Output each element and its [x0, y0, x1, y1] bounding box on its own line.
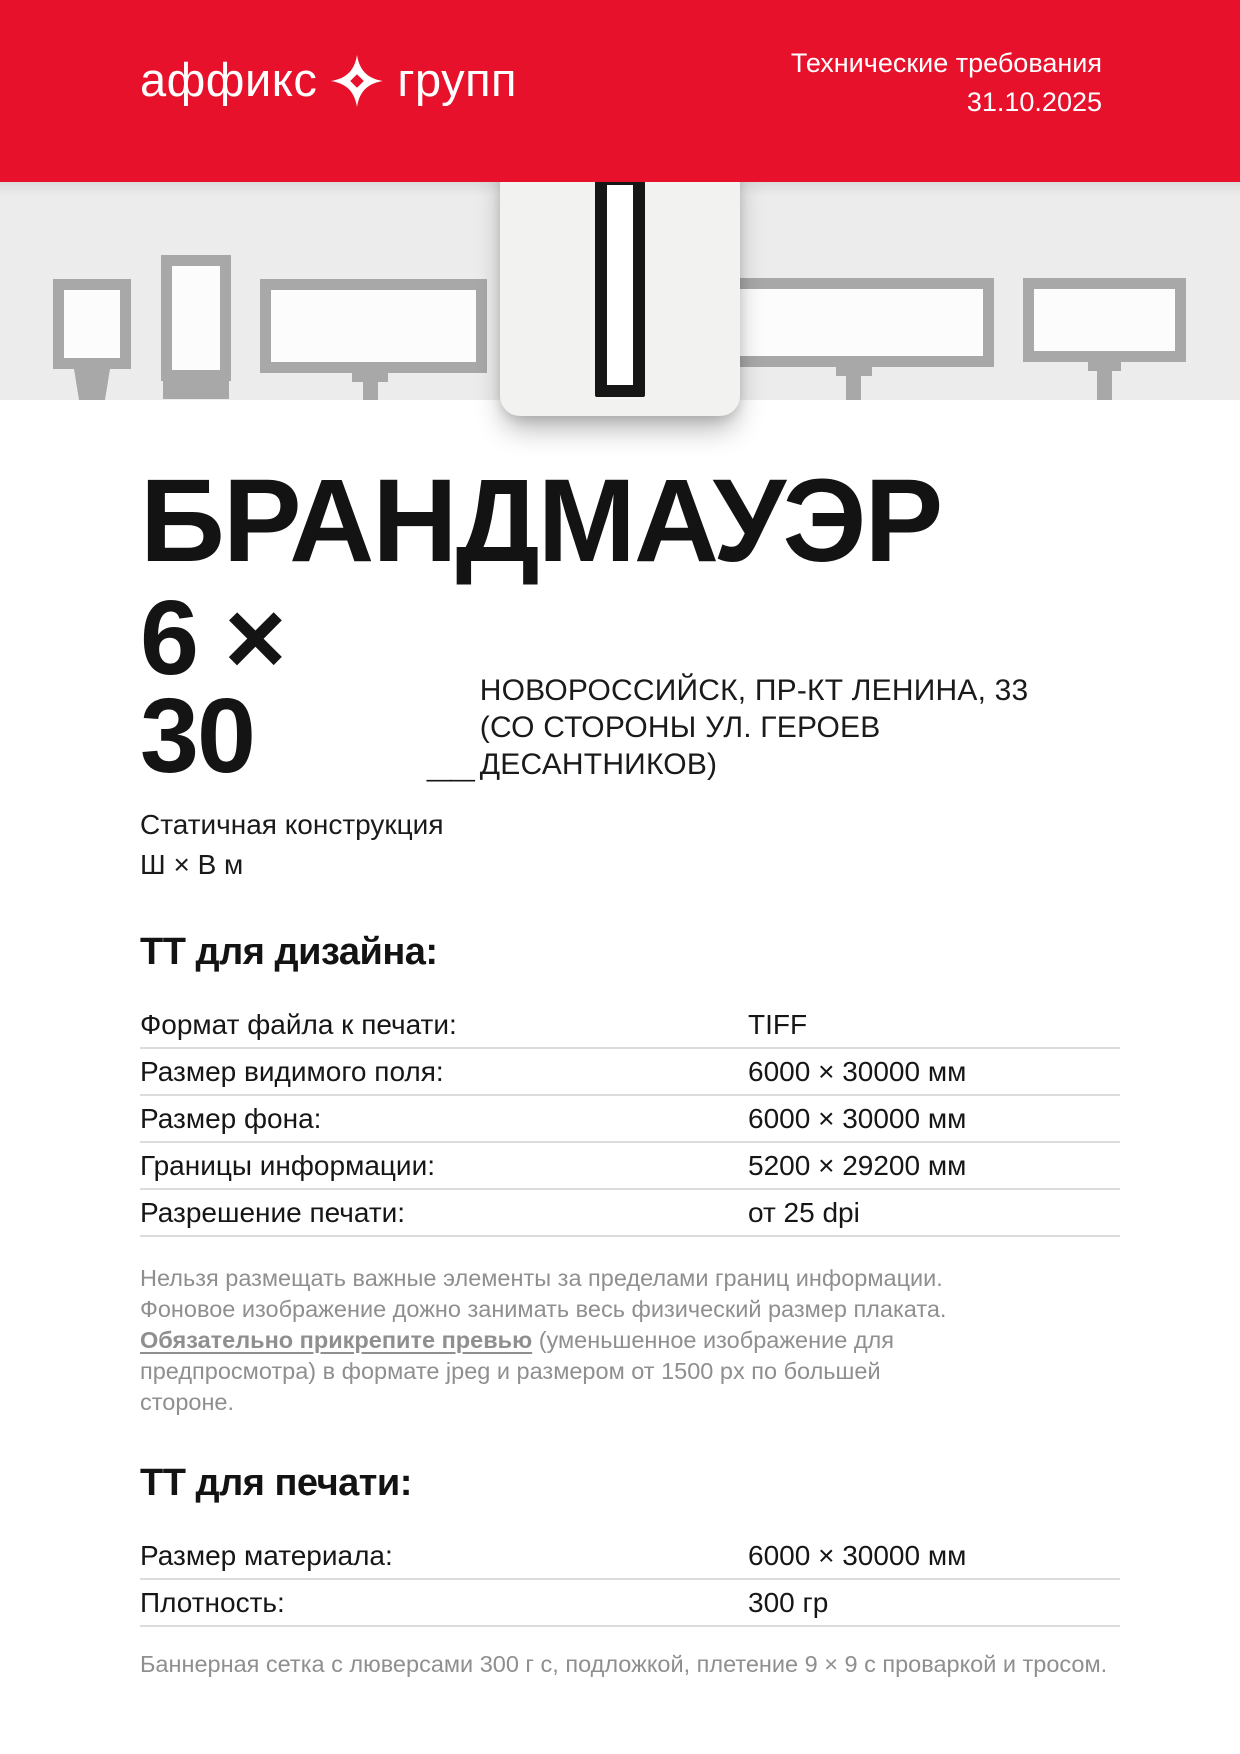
citylight-base: [74, 369, 110, 400]
table-row: Размер материала: 6000 × 30000 мм: [140, 1533, 1120, 1580]
construction-info: Статичная конструкция Ш × В м: [140, 805, 1120, 885]
header: аффикс групп Технические требования 31.1…: [0, 0, 1240, 182]
table-row: Формат файла к печати: TIFF: [140, 1002, 1120, 1049]
note-important-text: Обязательно прикрепите превью: [140, 1327, 532, 1353]
design-spec-table: Формат файла к печати: TIFF Размер видим…: [140, 1002, 1120, 1237]
constructions-band: [0, 182, 1240, 400]
format-card: [500, 154, 740, 416]
logo-text-affix: аффикс: [140, 52, 317, 107]
logo-text-group: групп: [397, 52, 517, 107]
table-row: Границы информации: 5200 × 29200 мм: [140, 1143, 1120, 1190]
row-value: 300 гр: [748, 1587, 828, 1619]
print-spec-table: Размер материала: 6000 × 30000 мм Плотно…: [140, 1533, 1120, 1627]
construction-type: Статичная конструкция: [140, 805, 1120, 845]
doc-date: 31.10.2025: [791, 83, 1102, 122]
row-label: Размер видимого поля:: [140, 1056, 444, 1088]
pillar-icon: [161, 255, 231, 381]
row-value: TIFF: [748, 1009, 807, 1041]
table-row: Размер видимого поля: 6000 × 30000 мм: [140, 1049, 1120, 1096]
affix-group-logo: аффикс групп: [140, 52, 517, 107]
tech-requirements-page: аффикс групп Технические требования 31.1…: [0, 0, 1240, 1754]
pillar-base: [163, 381, 229, 399]
brandmauer-format-icon: [595, 173, 645, 397]
underscore-decoration: __: [427, 749, 474, 775]
design-section-heading: ТТ для дизайна:: [140, 931, 1120, 974]
material-note: Баннерная сетка с люверсами 300 г с, под…: [140, 1649, 1120, 1680]
table-row: Плотность: 300 гр: [140, 1580, 1120, 1627]
board-far-right-icon: [1023, 278, 1186, 362]
main-content: БРАНДМАУЭР 6 × 30 __ НОВОРОССИЙСК, ПР-КТ…: [0, 462, 1240, 1680]
address-line-1: НОВОРОССИЙСК, ПР-КТ ЛЕНИНА, 33: [480, 672, 1120, 709]
row-value: 6000 × 30000 мм: [748, 1103, 966, 1135]
doc-meta: Технические требования 31.10.2025: [791, 44, 1102, 122]
row-label: Плотность:: [140, 1587, 285, 1619]
table-row: Разрешение печати: от 25 dpi: [140, 1190, 1120, 1237]
note-text: Нельзя размещать важные элементы за пред…: [140, 1265, 946, 1322]
size-value: 6 × 30: [140, 590, 423, 785]
billboard-right-pole: [846, 367, 861, 400]
billboard-left-pole: [363, 373, 378, 400]
board-far-right-pole: [1097, 362, 1112, 400]
citylight-icon: [53, 279, 131, 369]
print-section-heading: ТТ для печати:: [140, 1462, 1120, 1505]
design-note: Нельзя размещать важные элементы за пред…: [140, 1263, 950, 1418]
billboard-left-icon: [260, 279, 487, 373]
sparkle-star-icon: [331, 55, 383, 107]
dimensions-legend: Ш × В м: [140, 845, 1120, 885]
row-label: Формат файла к печати:: [140, 1009, 457, 1041]
address: НОВОРОССИЙСК, ПР-КТ ЛЕНИНА, 33 (СО СТОРО…: [480, 672, 1120, 783]
row-label: Разрешение печати:: [140, 1197, 405, 1229]
doc-type: Технические требования: [791, 44, 1102, 83]
row-value: 6000 × 30000 мм: [748, 1056, 966, 1088]
address-line-2: (СО СТОРОНЫ УЛ. ГЕРОЕВ ДЕСАНТНИКОВ): [480, 709, 1120, 783]
size-row: 6 × 30 __ НОВОРОССИЙСК, ПР-КТ ЛЕНИНА, 33…: [140, 590, 1120, 785]
row-value: от 25 dpi: [748, 1197, 860, 1229]
page-title: БРАНДМАУЭР: [140, 462, 1120, 580]
row-label: Размер материала:: [140, 1540, 393, 1572]
table-row: Размер фона: 6000 × 30000 мм: [140, 1096, 1120, 1143]
row-label: Границы информации:: [140, 1150, 435, 1182]
row-value: 5200 × 29200 мм: [748, 1150, 966, 1182]
row-label: Размер фона:: [140, 1103, 321, 1135]
row-value: 6000 × 30000 мм: [748, 1540, 966, 1572]
